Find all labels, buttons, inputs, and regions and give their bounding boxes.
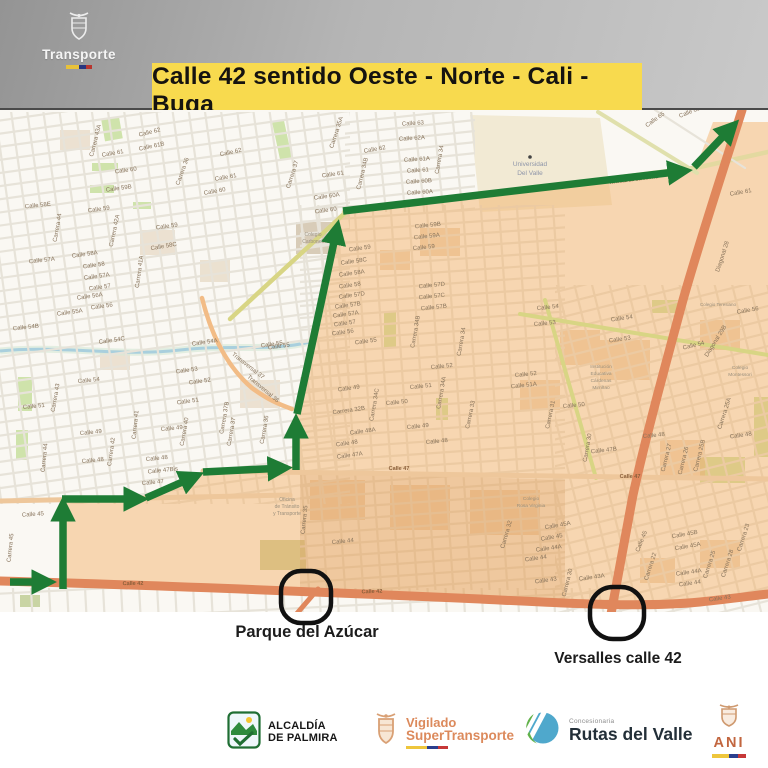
rutas-del-valle-text: Rutas del Valle <box>569 725 693 743</box>
map-label: Calle 42 <box>361 589 382 596</box>
map-label: Del Valle <box>517 170 543 177</box>
map-label: de Tránsito <box>275 504 300 510</box>
vigilado-text: Vigilado <box>406 716 514 730</box>
ani-flag-bar <box>712 754 746 758</box>
ani-logo: ANI <box>712 703 746 758</box>
supertransporte-text: SuperTransporte <box>406 729 514 743</box>
highlight-subzone <box>300 472 565 600</box>
map-label: Oficina <box>279 497 295 503</box>
alcaldia-shield-icon <box>227 711 261 754</box>
university-marker <box>528 155 532 159</box>
map-label: y Transporte <box>273 511 301 517</box>
supertransporte-logo: Vigilado SuperTransporte <box>373 711 514 754</box>
map-label: Colegio Teresiano <box>700 302 736 307</box>
map-label: Colegio <box>732 365 749 371</box>
map-label: Mirriñao <box>592 385 610 391</box>
label-parque-del-azucar: Parque del Azúcar <box>228 623 386 642</box>
supertransporte-emblem-icon <box>373 711 399 754</box>
map-label: Colegio <box>523 496 540 502</box>
rutas-del-valle-icon <box>522 708 562 753</box>
map-label: Calle 47 <box>389 466 410 472</box>
supertransporte-flag-bar <box>406 746 448 750</box>
map-label: Colegio <box>305 232 322 238</box>
rutas-del-valle-logo: Concesionaria Rutas del Valle <box>522 708 693 753</box>
colombia-flag-bar <box>66 65 92 69</box>
ani-text: ANI <box>712 735 746 751</box>
map-label: Calle 42 <box>123 581 144 587</box>
map-label: Rosa Virginia <box>517 503 546 509</box>
alcaldia-text-1: ALCALDÍA <box>268 721 338 733</box>
map-label: Universidad <box>513 161 548 168</box>
map-label: Cárdenas <box>591 378 612 384</box>
footer-logos: ALCALDÍA DE PALMIRA Vigilado SuperTransp… <box>0 695 768 768</box>
ani-emblem-icon <box>717 716 741 733</box>
ministry-name: Transporte <box>24 47 134 62</box>
map-label: Montessori <box>728 372 751 378</box>
alcaldia-palmira-logo: ALCALDÍA DE PALMIRA <box>227 711 338 754</box>
map-label: Institución <box>590 364 612 370</box>
map-label: Educativa <box>590 371 611 377</box>
map-label: Calle 47 <box>620 474 641 480</box>
flyer-page: { "header": { "brand": "Transporte" }, "… <box>0 0 768 768</box>
label-versalles-calle-42: Versalles calle 42 <box>543 650 693 668</box>
ministry-logo: Transporte <box>24 12 134 69</box>
alcaldia-text-2: DE PALMIRA <box>268 733 338 745</box>
map-label: Carbonell <box>302 239 323 245</box>
coat-of-arms-icon <box>66 12 92 42</box>
city-map: Calle 42Calle 42Calle 47Calle 47Calle 46… <box>0 110 768 655</box>
